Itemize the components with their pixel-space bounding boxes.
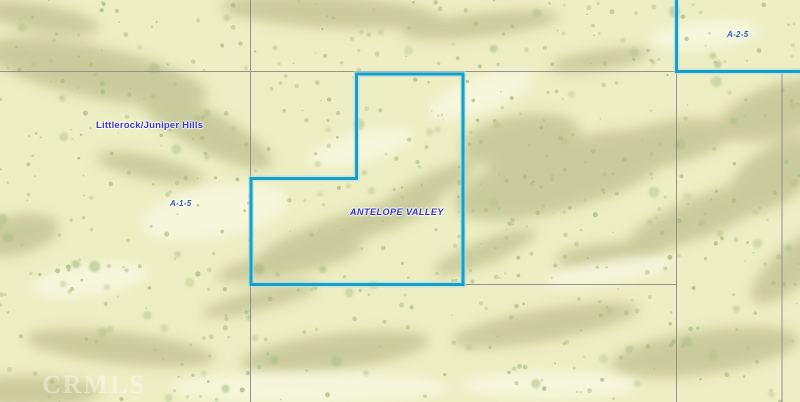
- mls-watermark: CRMLS: [42, 370, 146, 400]
- place-label-antelope-valley: ANTELOPE VALLEY: [350, 207, 444, 217]
- zoning-label-a-1-5: A-1-5: [170, 199, 192, 208]
- map-canvas[interactable]: Littlerock/Juniper Hills ANTELOPE VALLEY…: [0, 0, 800, 402]
- map-render-layer: [0, 0, 800, 402]
- zoning-label-a-2-5: A-2-5: [727, 30, 749, 39]
- place-label-littlerock-juniper-hills: Littlerock/Juniper Hills: [96, 120, 203, 131]
